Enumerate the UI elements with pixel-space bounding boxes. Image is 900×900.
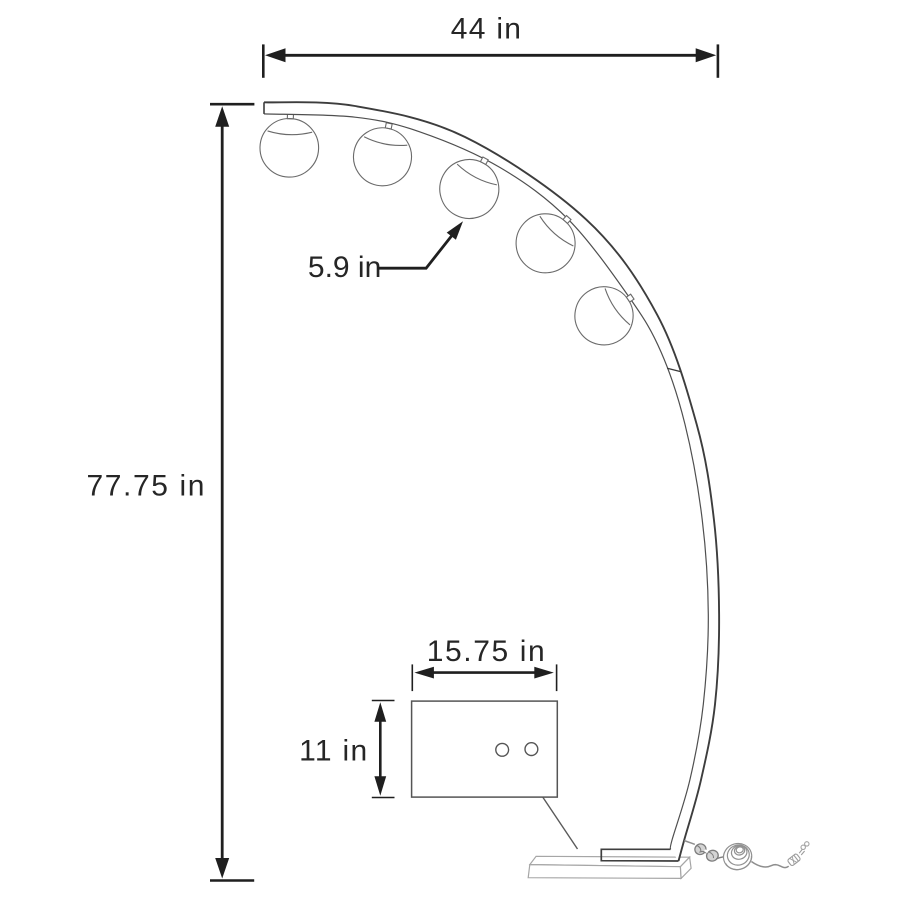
svg-text:5.9 in: 5.9 in [308,251,381,284]
svg-text:11 in: 11 in [299,734,368,767]
svg-text:44 in: 44 in [451,13,523,46]
svg-text:15.75 in: 15.75 in [427,635,547,668]
svg-text:77.75 in: 77.75 in [86,470,206,503]
